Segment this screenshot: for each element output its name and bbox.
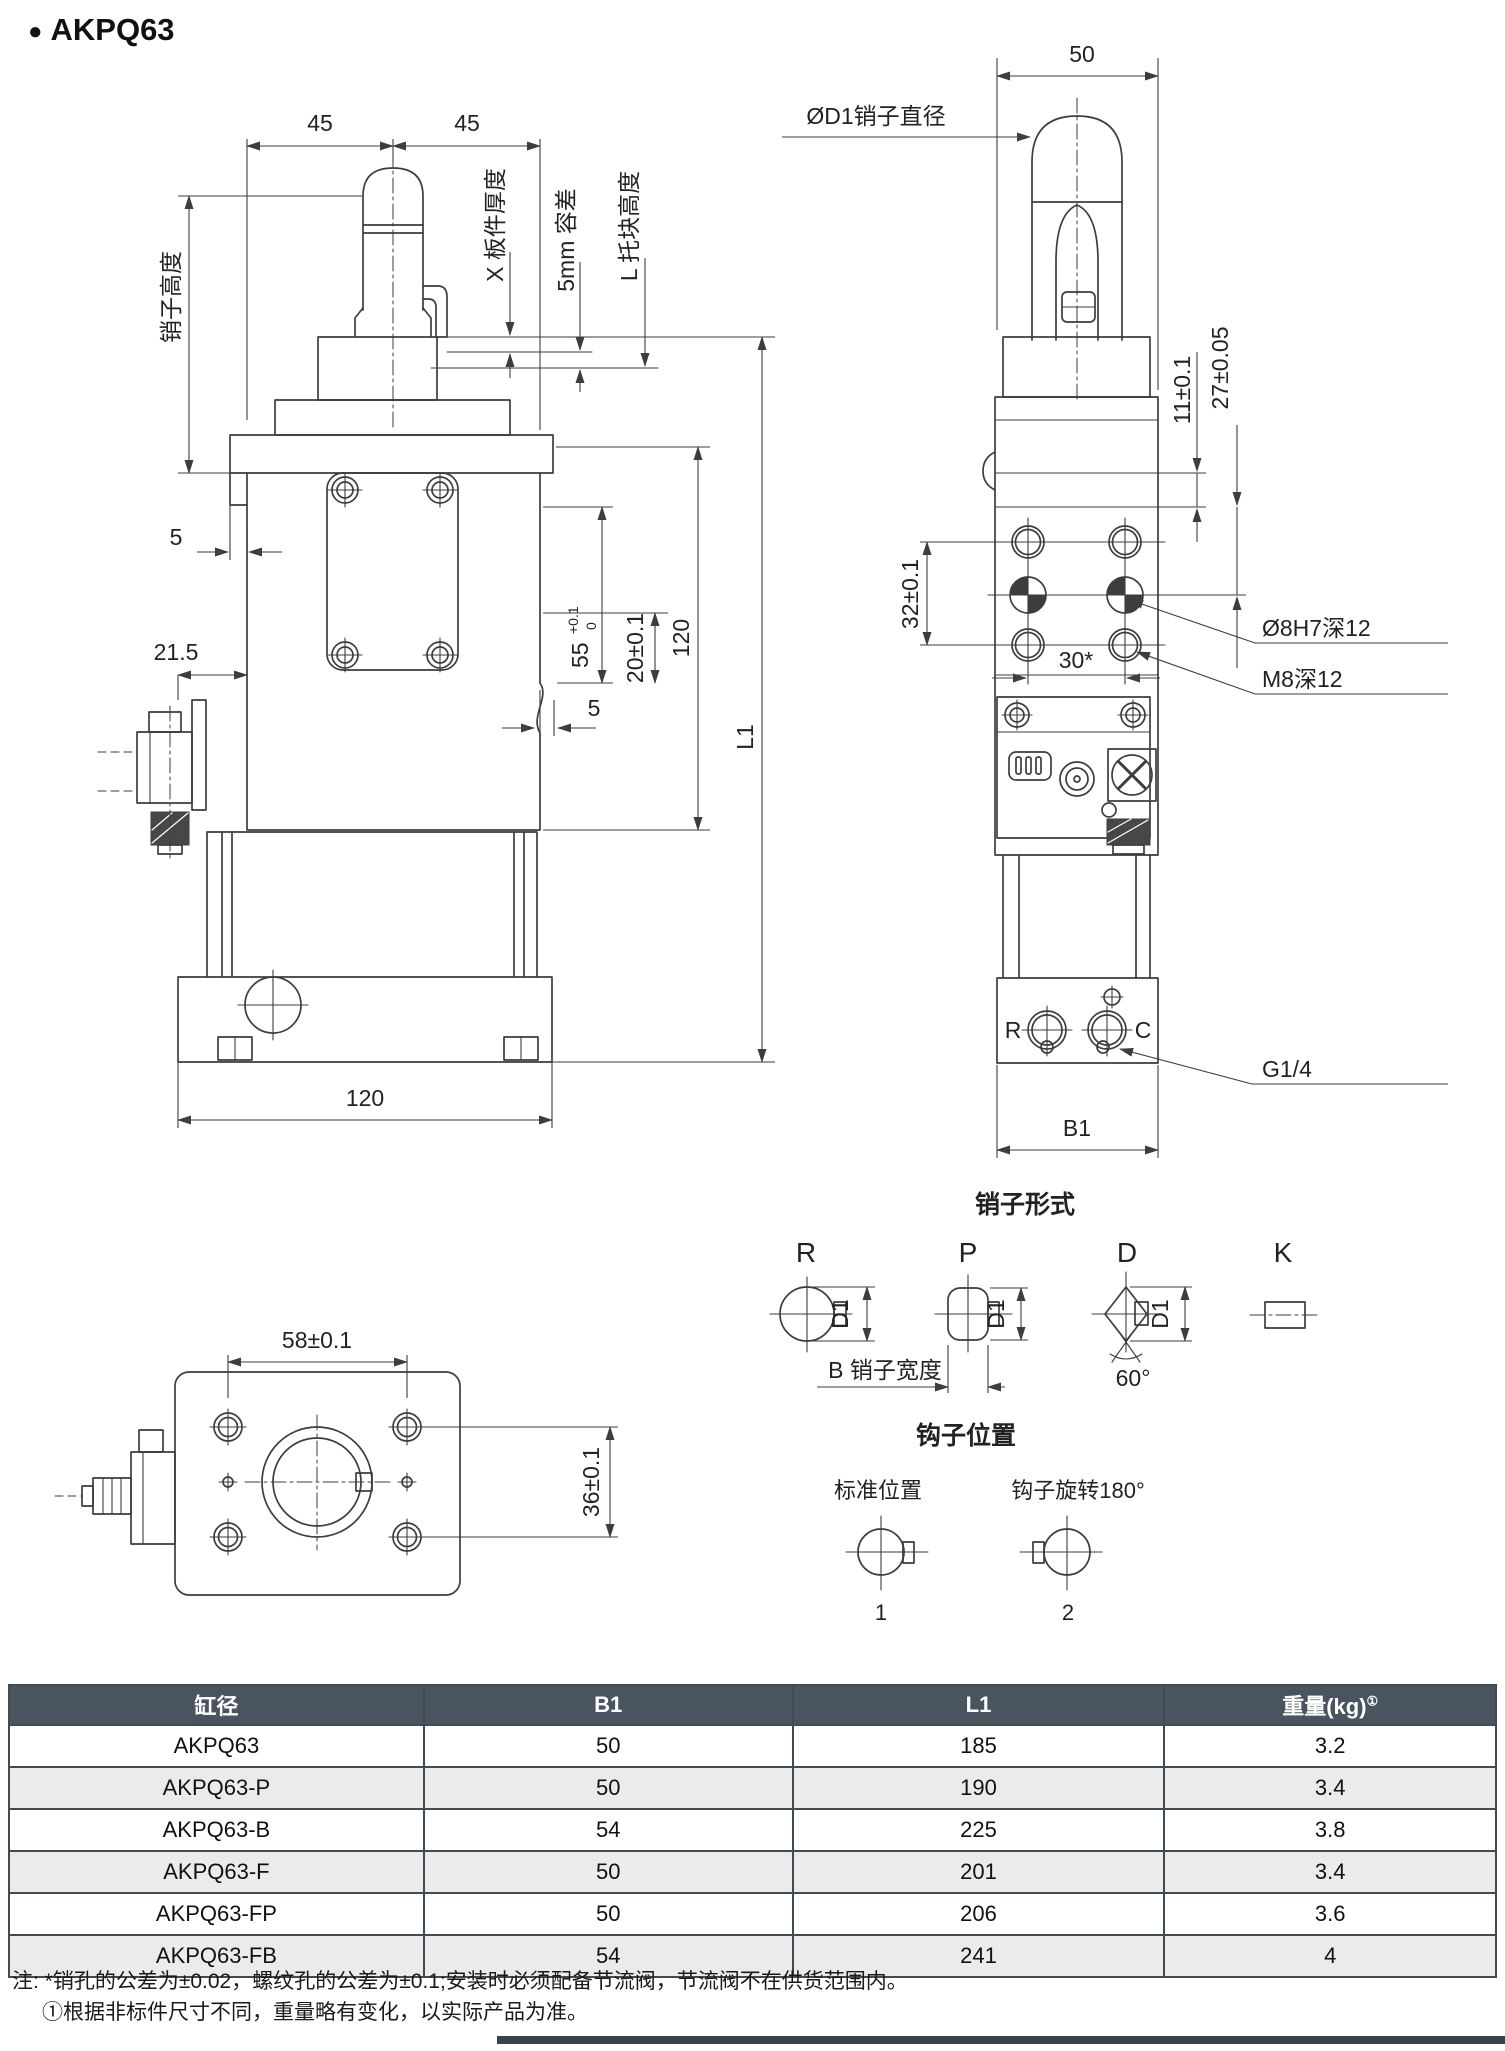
cell-weight: 3.2 [1164, 1725, 1496, 1767]
label-port: G1/4 [1262, 1056, 1312, 1082]
dim-45-right: 45 [454, 110, 480, 136]
label-thread: M8深12 [1262, 666, 1343, 692]
technical-drawing: 45 45 销子高度 X 板件厚度 5mm 容差 L 托块高度 [0, 0, 1505, 1680]
cell-model: AKPQ63-FP [9, 1893, 424, 1935]
label-hole: Ø8H7深12 [1262, 615, 1371, 641]
cell-b1: 50 [424, 1851, 793, 1893]
hook-rotated-label: 钩子旋转180° [1011, 1478, 1145, 1503]
cell-l1: 201 [793, 1851, 1165, 1893]
footer-bar [497, 2036, 1505, 2044]
dim-32: 32±0.1 [897, 559, 923, 629]
air-fitting [98, 700, 206, 862]
cell-l1: 206 [793, 1893, 1165, 1935]
pin-forms-title: 销子形式 [975, 1191, 1075, 1219]
pin-angle: 60° [1116, 1365, 1151, 1391]
valve-block [997, 697, 1156, 838]
dim-d1-p: D1 [983, 1299, 1009, 1328]
dim-d1-d: D1 [1147, 1299, 1173, 1328]
side-view-geometry [983, 98, 1165, 1063]
notes: 注: *销孔的公差为±0.02，螺纹孔的公差为±0.1;安装时必须配备节流阀，节… [12, 1966, 908, 2028]
cell-model: AKPQ63-B [9, 1809, 424, 1851]
col-header-b1: B1 [424, 1685, 793, 1725]
col-header-weight: 重量(kg)① [1164, 1685, 1496, 1725]
cell-l1: 225 [793, 1809, 1165, 1851]
cell-b1: 50 [424, 1767, 793, 1809]
note-line-2: ①根据非标件尺寸不同，重量略有变化，以实际产品为准。 [12, 1997, 908, 2028]
cell-model: AKPQ63-F [9, 1851, 424, 1893]
dim-30: 30* [1059, 647, 1094, 673]
dim-11: 11±0.1 [1169, 356, 1195, 424]
pin-forms-section: 销子形式 R D1 P [770, 1191, 1320, 1393]
cell-b1: 50 [424, 1725, 793, 1767]
label-plate-thickness: X 板件厚度 [482, 168, 508, 282]
col-header-l1: L1 [793, 1685, 1165, 1725]
cell-model: AKPQ63-P [9, 1767, 424, 1809]
threaded-stud [1102, 803, 1150, 854]
catalog-page: ●AKPQ63 [0, 0, 1505, 2051]
cell-weight: 3.4 [1164, 1851, 1496, 1893]
dim-20: 20±0.1 [622, 613, 648, 683]
pin-type-r: R [796, 1237, 816, 1268]
hook-pos-1: 1 [875, 1600, 887, 1625]
hook-pos-2: 2 [1062, 1600, 1074, 1625]
cell-b1: 50 [424, 1893, 793, 1935]
pin-width-label: B 销子宽度 [828, 1357, 942, 1383]
pin-type-k: K [1274, 1237, 1293, 1268]
pin-type-p: P [959, 1237, 978, 1268]
dim-21-5: 21.5 [154, 639, 199, 665]
dim-45-left: 45 [307, 110, 333, 136]
label-pin-height: 销子高度 [158, 251, 184, 343]
label-pin-dia: ØD1销子直径 [806, 103, 945, 129]
dim-58: 58±0.1 [282, 1327, 352, 1353]
cell-weight: 4 [1164, 1935, 1496, 1977]
dim-55-lower: 0 [583, 622, 599, 630]
table-row: AKPQ63-B 54 225 3.8 [9, 1809, 1496, 1851]
cell-weight: 3.4 [1164, 1767, 1496, 1809]
cell-b1: 54 [424, 1809, 793, 1851]
dim-36: 36±0.1 [578, 1447, 604, 1517]
label-block-height: L 托块高度 [616, 171, 642, 281]
dim-55-upper: +0.1 [565, 606, 581, 634]
table-row: AKPQ63-F 50 201 3.4 [9, 1851, 1496, 1893]
table-header-row: 缸径 B1 L1 重量(kg)① [9, 1685, 1496, 1725]
dim-27: 27±0.05 [1207, 327, 1233, 410]
table-row: AKPQ63-FP 50 206 3.6 [9, 1893, 1496, 1935]
cell-l1: 185 [793, 1725, 1165, 1767]
cell-weight: 3.6 [1164, 1893, 1496, 1935]
dim-l1: L1 [732, 724, 758, 750]
hook-position-section: 钩子位置 标准位置 钩子旋转180° 1 2 [834, 1421, 1145, 1625]
dim-50: 50 [1069, 41, 1095, 67]
dim-d1-r: D1 [827, 1299, 853, 1328]
spec-table: 缸径 B1 L1 重量(kg)① AKPQ63 50 185 3.2 AKPQ6… [8, 1684, 1497, 1978]
note-line-1: 注: *销孔的公差为±0.02，螺纹孔的公差为±0.1;安装时必须配备节流阀，节… [12, 1966, 908, 1997]
col-header-bore: 缸径 [9, 1685, 424, 1725]
port-r-label: R [1005, 1017, 1022, 1043]
cell-l1: 190 [793, 1767, 1165, 1809]
label-tolerance: 5mm 容差 [553, 188, 579, 292]
screw-icon [328, 473, 457, 672]
hook-position-title: 钩子位置 [916, 1421, 1016, 1450]
table-row: AKPQ63-P 50 190 3.4 [9, 1767, 1496, 1809]
cell-weight: 3.8 [1164, 1809, 1496, 1851]
dim-120-bottom: 120 [346, 1085, 384, 1111]
port-c-label: C [1135, 1017, 1152, 1043]
weight-footnote-mark: ① [1367, 1694, 1379, 1709]
hook-standard-label: 标准位置 [834, 1478, 922, 1503]
dim-5-right: 5 [588, 695, 601, 721]
pin-type-d: D [1117, 1237, 1137, 1268]
bottom-view-geometry: 58±0.1 36±0.1 [55, 1327, 618, 1595]
dim-b1: B1 [1063, 1115, 1091, 1141]
dim-5-left: 5 [170, 524, 183, 550]
dim-120-vertical: 120 [668, 619, 694, 657]
table-row: AKPQ63 50 185 3.2 [9, 1725, 1496, 1767]
cell-model: AKPQ63 [9, 1725, 424, 1767]
dim-55: 55 [567, 642, 593, 668]
